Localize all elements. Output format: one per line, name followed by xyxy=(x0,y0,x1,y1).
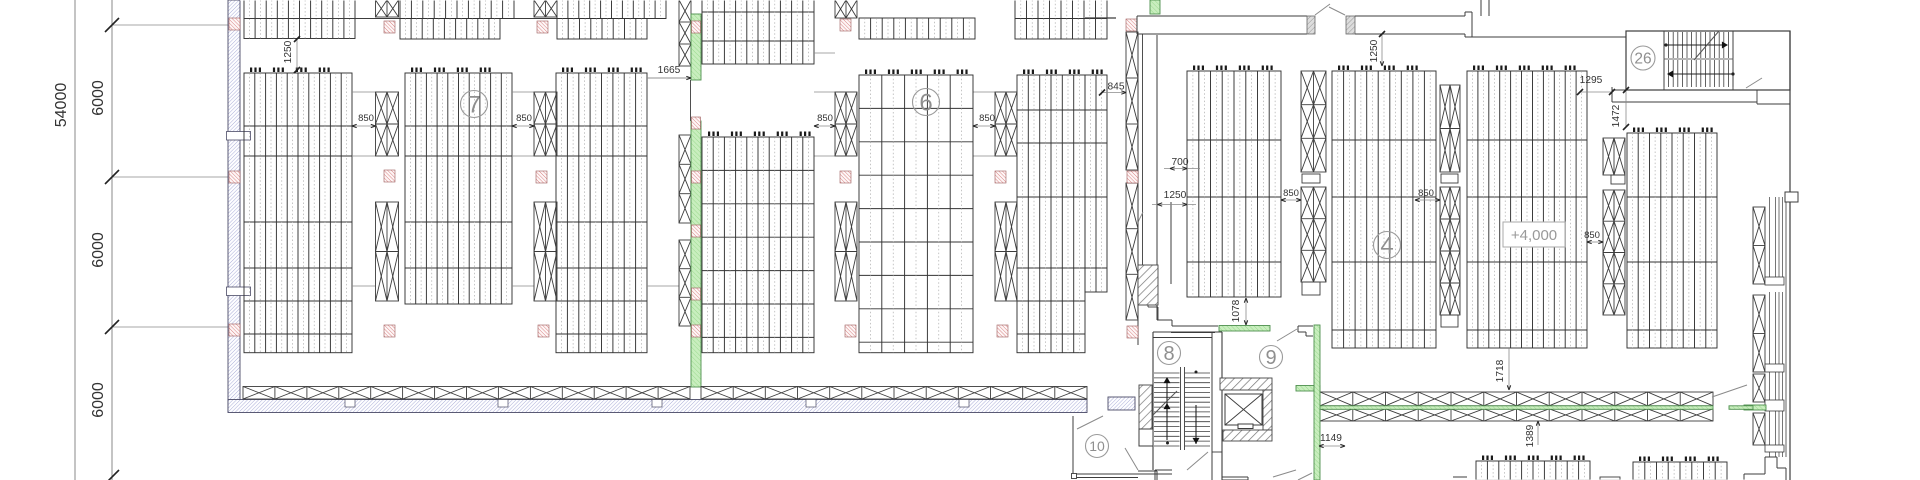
svg-text:1472: 1472 xyxy=(1611,104,1622,127)
svg-text:700: 700 xyxy=(1172,157,1189,168)
svg-text:10: 10 xyxy=(1089,438,1105,454)
svg-text:1250: 1250 xyxy=(1164,190,1187,201)
svg-text:54000: 54000 xyxy=(53,83,70,128)
svg-text:850: 850 xyxy=(358,113,374,124)
svg-text:7: 7 xyxy=(467,91,480,118)
svg-text:1078: 1078 xyxy=(1231,299,1242,322)
svg-text:1295: 1295 xyxy=(1580,75,1603,86)
svg-text:4: 4 xyxy=(1380,232,1393,259)
svg-text:+4,000: +4,000 xyxy=(1511,227,1557,244)
svg-text:6000: 6000 xyxy=(90,232,107,268)
svg-text:26: 26 xyxy=(1634,50,1651,67)
svg-text:1149: 1149 xyxy=(1320,433,1342,444)
svg-text:1389: 1389 xyxy=(1525,424,1536,447)
svg-text:850: 850 xyxy=(1418,188,1434,199)
svg-text:1250: 1250 xyxy=(283,40,294,63)
svg-text:850: 850 xyxy=(817,113,833,124)
svg-text:850: 850 xyxy=(1584,230,1600,241)
svg-text:1665: 1665 xyxy=(658,65,681,76)
svg-text:6000: 6000 xyxy=(90,80,107,116)
svg-text:850: 850 xyxy=(1283,188,1299,199)
svg-text:9: 9 xyxy=(1265,347,1276,369)
svg-text:8: 8 xyxy=(1163,343,1174,365)
svg-text:850: 850 xyxy=(979,113,995,124)
svg-text:6000: 6000 xyxy=(90,382,107,418)
svg-text:6: 6 xyxy=(919,89,932,116)
svg-text:850: 850 xyxy=(516,113,532,124)
svg-text:1250: 1250 xyxy=(1369,39,1380,62)
svg-text:1718: 1718 xyxy=(1495,359,1506,382)
